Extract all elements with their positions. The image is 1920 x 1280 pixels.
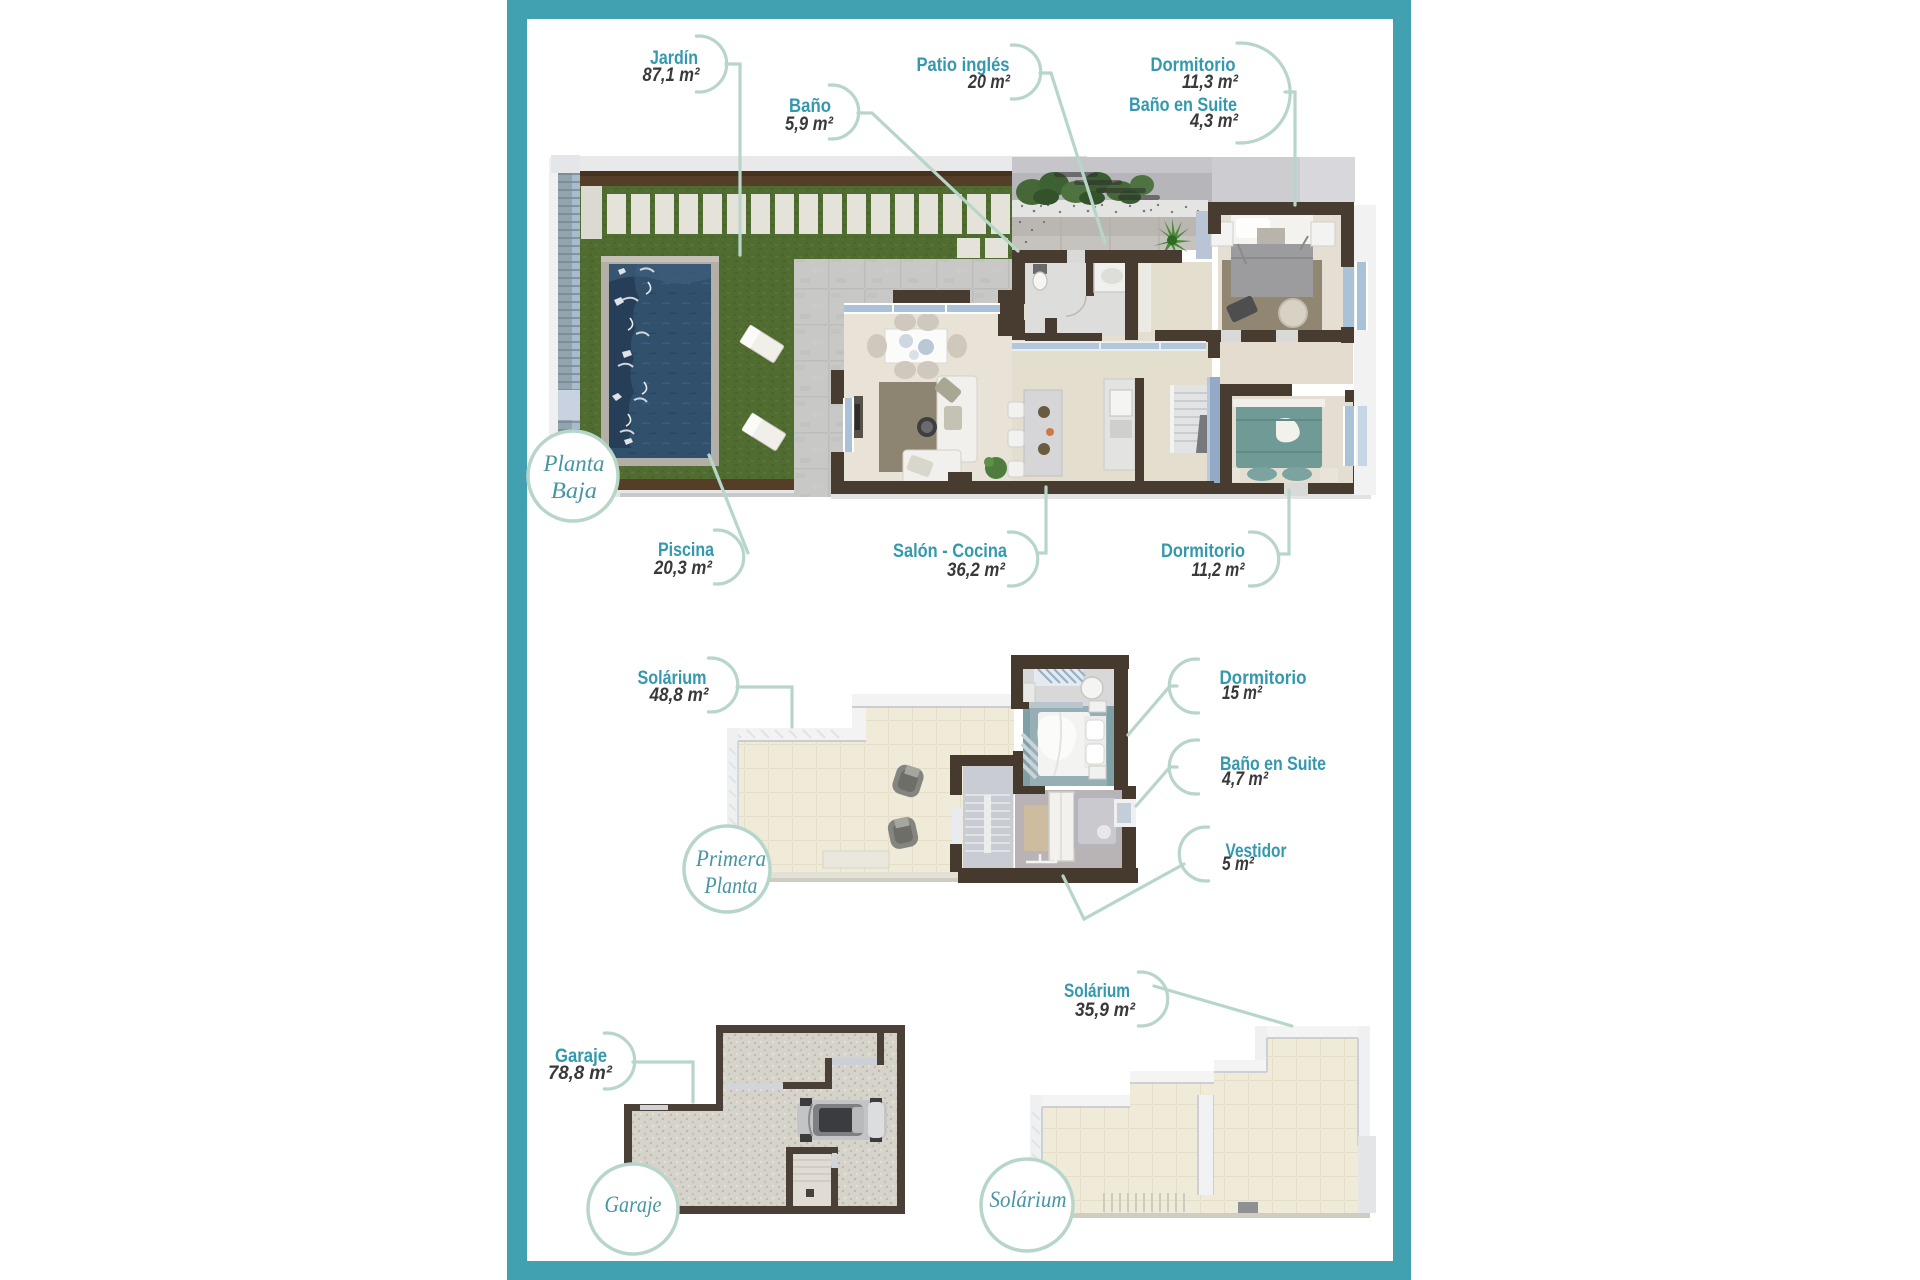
svg-text:78,8 m²: 78,8 m² [548, 1063, 613, 1084]
svg-text:Garaje: Garaje [605, 1192, 662, 1217]
svg-text:Salón - Cocina: Salón - Cocina [893, 541, 1007, 562]
svg-text:Planta: Planta [543, 451, 605, 476]
svg-text:Planta: Planta [704, 873, 758, 898]
svg-text:87,1 m²: 87,1 m² [643, 65, 701, 86]
svg-text:5 m²: 5 m² [1222, 854, 1255, 875]
svg-text:Primera: Primera [695, 846, 766, 871]
svg-text:20 m²: 20 m² [967, 72, 1010, 93]
svg-text:4,7 m²: 4,7 m² [1221, 769, 1268, 790]
svg-text:20,3 m²: 20,3 m² [653, 558, 712, 579]
svg-text:15 m²: 15 m² [1222, 683, 1263, 704]
svg-text:11,2 m²: 11,2 m² [1192, 560, 1246, 581]
svg-text:36,2 m²: 36,2 m² [947, 560, 1006, 581]
svg-text:Solárium: Solárium [1064, 981, 1130, 1002]
svg-text:11,3 m²: 11,3 m² [1182, 72, 1239, 93]
svg-text:35,9 m²: 35,9 m² [1075, 1000, 1136, 1021]
svg-text:Baja: Baja [551, 478, 597, 503]
svg-text:48,8 m²: 48,8 m² [649, 685, 710, 706]
svg-text:5,9 m²: 5,9 m² [785, 114, 834, 135]
svg-text:4,3 m²: 4,3 m² [1189, 111, 1238, 132]
svg-text:Dormitorio: Dormitorio [1161, 541, 1245, 562]
svg-text:Solárium: Solárium [990, 1187, 1067, 1212]
